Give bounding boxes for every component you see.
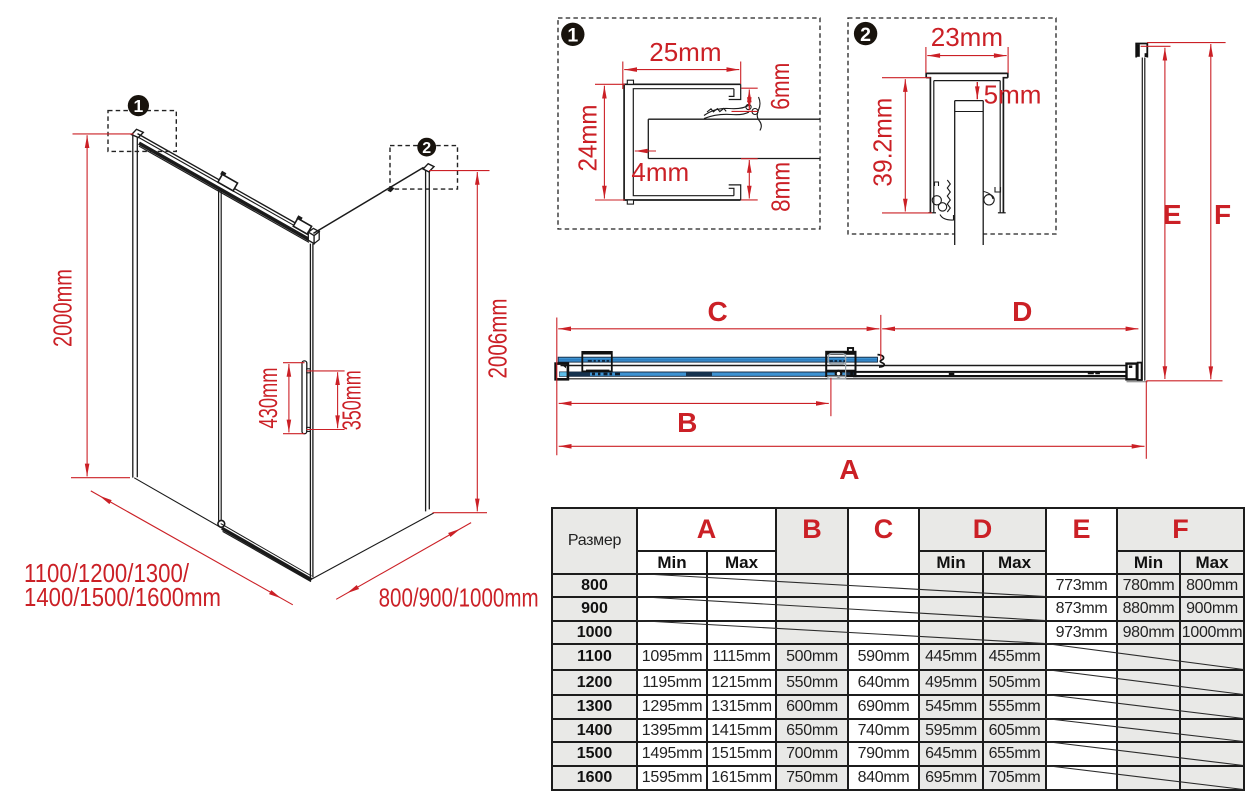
svg-text:39.2mm: 39.2mm: [868, 98, 898, 187]
svg-text:430mm: 430mm: [253, 368, 283, 429]
svg-text:B: B: [677, 407, 697, 438]
svg-text:C: C: [707, 296, 727, 327]
svg-text:2006mm: 2006mm: [483, 299, 513, 379]
svg-text:D: D: [1012, 296, 1032, 327]
svg-text:23mm: 23mm: [931, 22, 1003, 52]
svg-text:E: E: [1163, 199, 1182, 230]
svg-text:2000mm: 2000mm: [48, 269, 78, 347]
svg-text:25mm: 25mm: [649, 37, 721, 67]
svg-text:350mm: 350mm: [337, 370, 367, 430]
svg-text:24mm: 24mm: [573, 105, 603, 172]
svg-text:1400/1500/1600mm: 1400/1500/1600mm: [24, 582, 221, 612]
svg-text:2: 2: [860, 24, 871, 46]
svg-text:800/900/1000mm: 800/900/1000mm: [379, 583, 539, 613]
svg-text:2: 2: [422, 140, 431, 157]
svg-text:A: A: [839, 454, 859, 485]
svg-text:6mm: 6mm: [765, 63, 795, 110]
svg-text:5mm: 5mm: [984, 80, 1042, 110]
svg-text:8mm: 8mm: [766, 162, 796, 212]
svg-text:F: F: [1214, 199, 1231, 230]
svg-text:1: 1: [567, 25, 578, 47]
svg-text:1: 1: [134, 96, 144, 116]
svg-text:4mm: 4mm: [631, 157, 689, 187]
